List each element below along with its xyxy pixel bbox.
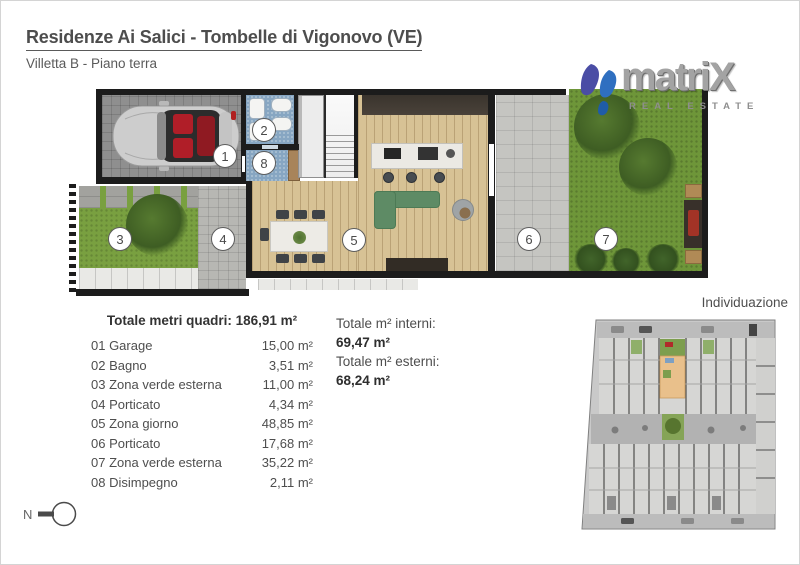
sink xyxy=(249,98,265,119)
area-row: 04 Porticato4,34 m² xyxy=(91,395,313,415)
stool-1 xyxy=(383,172,394,183)
room-marker-6: 6 xyxy=(517,227,541,251)
sink-kitchen xyxy=(418,147,438,160)
stair-treads xyxy=(326,132,354,178)
living-room-floor xyxy=(358,95,488,271)
media-shelf xyxy=(362,95,488,115)
area-row: 02 Bagno3,51 m² xyxy=(91,356,313,376)
room-label: 08 Disimpegno xyxy=(91,473,178,493)
dining-chair xyxy=(276,254,289,263)
area-row: 08 Disimpegno2,11 m² xyxy=(91,473,313,493)
toilet xyxy=(271,98,292,112)
area-table-header: Totale metri quadri: 186,91 m² xyxy=(91,313,313,328)
area-table: Totale metri quadri: 186,91 m² 01 Garage… xyxy=(91,313,313,492)
stool-2 xyxy=(406,172,417,183)
dining-chair xyxy=(260,228,269,241)
room-label: 03 Zona verde esterna xyxy=(91,375,222,395)
garden3-tree xyxy=(126,194,188,256)
bowl xyxy=(446,149,455,158)
window-living-right xyxy=(489,144,494,196)
room-area: 17,68 m² xyxy=(262,434,313,454)
north-label: N xyxy=(23,507,32,522)
entry-doormat xyxy=(258,279,418,290)
boundary-fence xyxy=(69,184,76,296)
room-area: 48,85 m² xyxy=(262,414,313,434)
room-area: 4,34 m² xyxy=(269,395,313,415)
kitchen-island xyxy=(371,143,463,169)
room-marker-2: 2 xyxy=(252,118,276,142)
door-gap-bath xyxy=(262,145,278,149)
dining-chair xyxy=(312,210,325,219)
wall-stairs-right xyxy=(354,89,358,178)
north-indicator: N xyxy=(23,499,78,529)
room-label: 05 Zona giorno xyxy=(91,414,178,434)
wall-bath-right xyxy=(294,95,298,146)
area-row: 05 Zona giorno48,85 m² xyxy=(91,414,313,434)
area-row: 06 Porticato17,68 m² xyxy=(91,434,313,454)
external-total-value: 68,24 m² xyxy=(336,371,486,390)
room-area: 11,00 m² xyxy=(263,375,313,395)
logo-tagline: REAL ESTATE xyxy=(629,101,759,112)
room-label: 04 Porticato xyxy=(91,395,160,415)
garden7-bush-3 xyxy=(646,244,680,274)
dining-table xyxy=(270,221,328,252)
bbq-fire xyxy=(688,210,699,236)
area-row: 03 Zona verde esterna11,00 m² xyxy=(91,375,313,395)
coffee-table xyxy=(452,199,474,221)
north-arrow-icon xyxy=(34,499,78,529)
wall-garage-left xyxy=(96,89,102,184)
logo-commas-icon xyxy=(569,63,627,119)
room-marker-5: 5 xyxy=(342,228,366,252)
bbq-grill xyxy=(684,200,703,248)
room-label: 01 Garage xyxy=(91,336,152,356)
dining-chair xyxy=(312,254,325,263)
sidewalk-tiles xyxy=(79,268,198,289)
table-plant xyxy=(293,231,306,244)
bbq-bench-bottom xyxy=(685,250,702,264)
area-row: 01 Garage15,00 m² xyxy=(91,336,313,356)
room-marker-3: 3 xyxy=(108,227,132,251)
room-area: 3,51 m² xyxy=(269,356,313,376)
stool-3 xyxy=(434,172,445,183)
dining-chair xyxy=(276,210,289,219)
room-marker-8: 8 xyxy=(252,151,276,175)
door-gap-garage xyxy=(242,156,245,172)
cooktop xyxy=(384,148,401,159)
internal-total-label: Totale m² interni: xyxy=(336,315,486,333)
totals-block: Totale m² interni: 69,47 m² Totale m² es… xyxy=(336,315,486,391)
dining-chair xyxy=(294,254,307,263)
logo-brand-text: matriX xyxy=(621,55,734,100)
wardrobe-panel xyxy=(298,95,324,178)
room-area: 2,11 m² xyxy=(270,473,313,493)
page-subtitle: Villetta B - Piano terra xyxy=(26,56,157,71)
wall-deck-left xyxy=(246,181,252,278)
internal-total-value: 69,47 m² xyxy=(336,333,486,352)
tv-bench xyxy=(386,258,448,271)
wall-top xyxy=(96,89,566,95)
matrix-logo: matriX REAL ESTATE xyxy=(569,61,797,123)
room-label: 07 Zona verde esterna xyxy=(91,453,222,473)
room-area: 35,22 m² xyxy=(262,453,313,473)
room-label: 06 Porticato xyxy=(91,434,160,454)
siteplan-title: Individuazione xyxy=(636,295,788,310)
bbq-bench-top xyxy=(685,184,702,198)
staircase xyxy=(324,95,354,178)
wall-boundary-bottom-left xyxy=(69,289,249,296)
room-area: 15,00 m² xyxy=(262,336,313,356)
external-total-label: Totale m² esterni: xyxy=(336,353,486,371)
room-marker-7: 7 xyxy=(594,227,618,251)
room-marker-1: 1 xyxy=(213,144,237,168)
wall-garage-bottom xyxy=(96,177,246,184)
area-row: 07 Zona verde esterna35,22 m² xyxy=(91,453,313,473)
room-label: 02 Bagno xyxy=(91,356,147,376)
sofa-chaise xyxy=(374,191,396,229)
room-marker-4: 4 xyxy=(211,227,235,251)
wall-bottom-main xyxy=(246,271,708,278)
site-plan xyxy=(581,318,789,534)
page-title: Residenze Ai Salici - Tombelle di Vigono… xyxy=(26,27,422,51)
dining-chair xyxy=(294,210,307,219)
brochure-page: Residenze Ai Salici - Tombelle di Vigono… xyxy=(0,0,800,565)
garden7-tree-2 xyxy=(619,138,677,196)
